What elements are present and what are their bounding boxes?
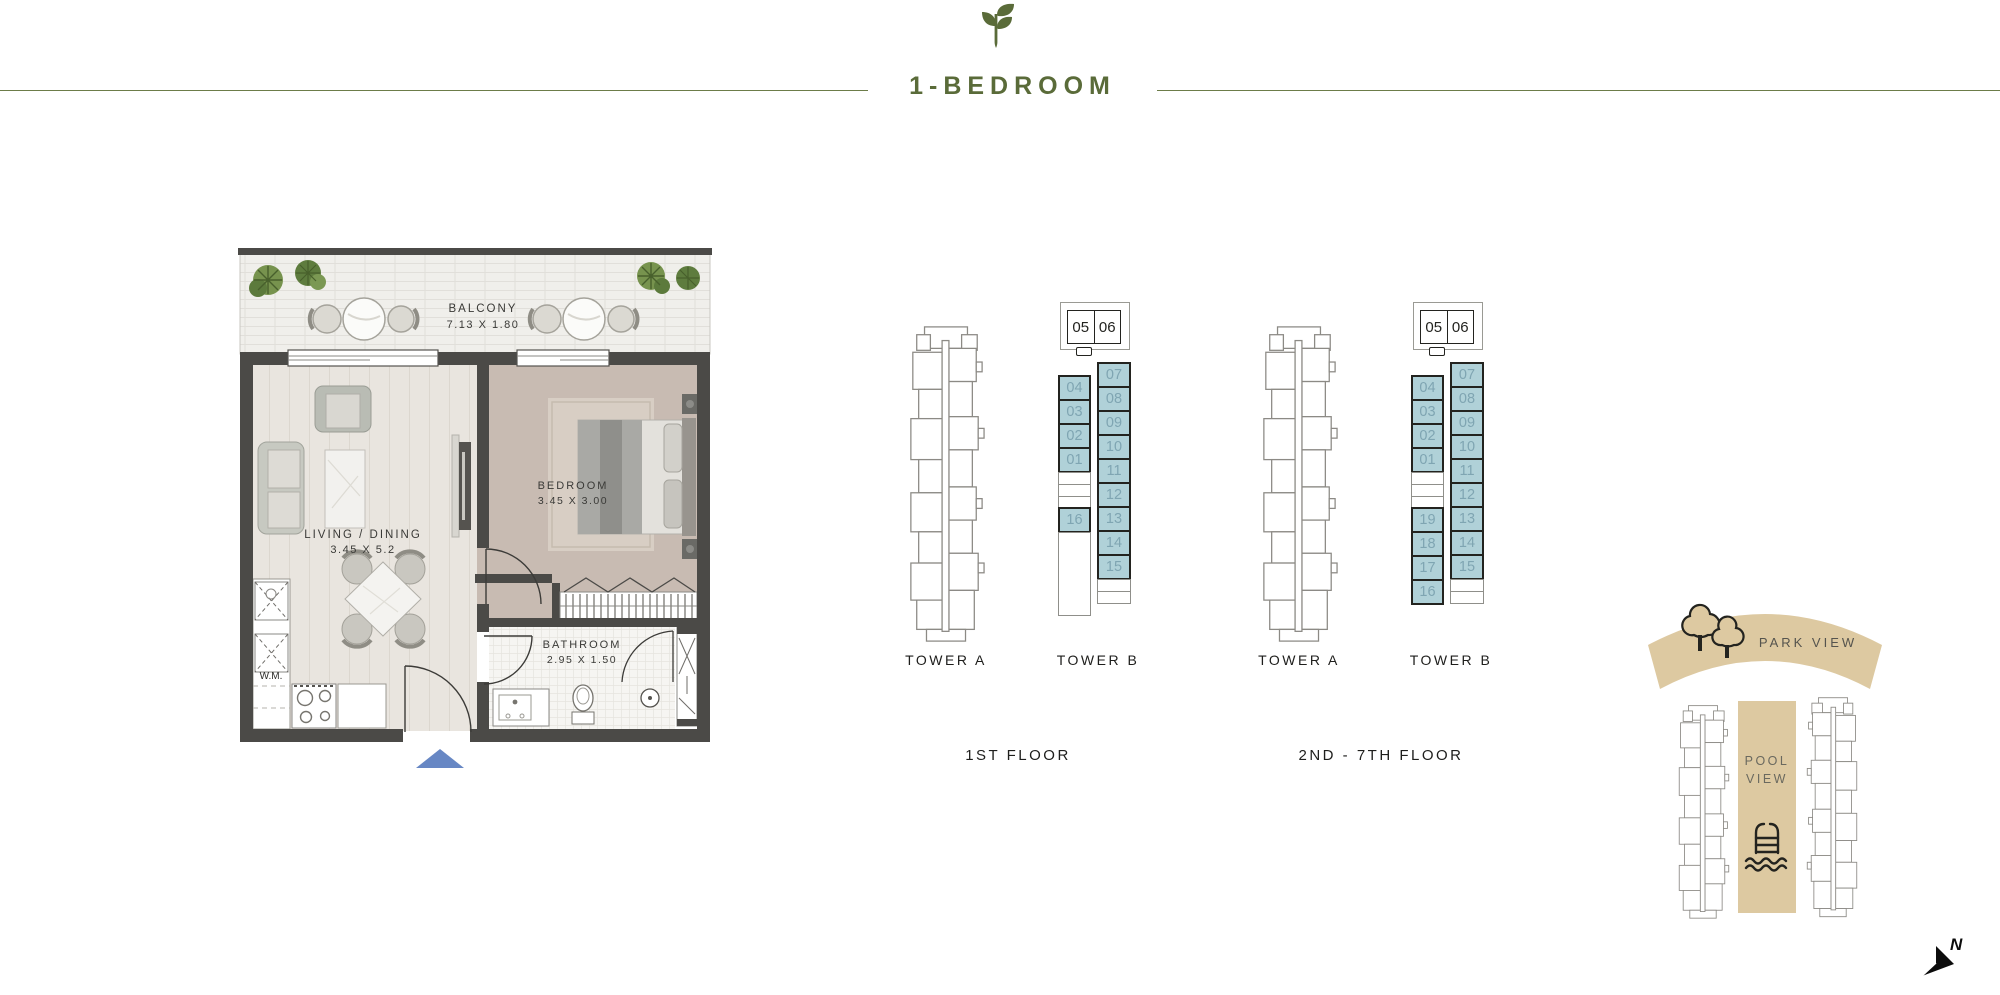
unit-18: 18 [1411,531,1444,557]
floor-label: 1ST FLOOR [888,747,1148,764]
unit-14: 14 [1450,530,1484,556]
unit-14: 14 [1097,530,1131,556]
tower-a-outline [896,323,996,645]
unit-10: 10 [1097,434,1131,460]
site-tower-a-outline [1679,706,1729,919]
lift-icon [1076,347,1092,356]
unit-03: 03 [1411,399,1444,425]
stack-right-column: 070809101112131415 [1450,362,1484,604]
park-view-label: PARK VIEW [1759,635,1857,650]
unit-15: 15 [1097,554,1131,580]
tower-b-label: TOWER B [1028,652,1168,668]
unit-05: 05 [1421,311,1448,343]
tower-b-stack: 05 06 0403020119181716 07080910111213141… [1405,300,1540,650]
unit-10: 10 [1450,434,1484,460]
balcony-label: BALCONY [449,303,518,315]
unused-unit [1097,591,1131,604]
unit-11: 11 [1450,458,1484,484]
tower-a-label: TOWER A [876,652,1016,668]
site-plan: PARK VIEW POOL VIEW N [1630,583,1980,995]
pool-view-band [1738,701,1796,913]
stack-left-column: 0403020119181716 [1411,375,1444,605]
entry-marker-icon [416,749,464,768]
stack-left-column: 0403020116 [1058,375,1091,616]
unit-19: 19 [1411,507,1444,533]
stack-header: 05 06 [1420,310,1474,344]
balcony-dims: 7.13 X 1.80 [447,319,520,331]
diagram-1st-floor: 05 06 0403020116 070809101112131415 TOWE… [880,295,1200,775]
living-window [288,350,438,366]
unit-07: 07 [1450,362,1484,388]
unit-02: 02 [1411,423,1444,449]
title-rule-right [1157,90,2000,91]
unit-13: 13 [1097,506,1131,532]
pool-view-label-2: VIEW [1746,772,1788,786]
tower-b-stack: 05 06 0403020116 070809101112131415 [1052,300,1187,650]
page: 1-BEDROOM [0,0,2000,995]
bedroom-label: BEDROOM [538,480,609,492]
unit-13: 13 [1450,506,1484,532]
coffee-table [325,450,365,528]
unit-01: 01 [1411,447,1444,473]
bedroom-window [517,350,609,366]
brand-leaf-icon [970,2,1022,48]
diagram-2nd-7th-floor: 05 06 0403020119181716 07080910111213141… [1233,295,1553,775]
pool-view-label-1: POOL [1745,754,1790,768]
title-rule-left [0,90,868,91]
unit-08: 08 [1450,386,1484,412]
unit-09: 09 [1450,410,1484,436]
unit-17: 17 [1411,555,1444,581]
unit-07: 07 [1097,362,1131,388]
unit-16: 16 [1058,507,1091,533]
north-label: N [1950,935,1963,954]
sofa [258,442,304,534]
closet [677,627,697,726]
unit-12: 12 [1097,482,1131,508]
site-tower-b-outline [1807,698,1857,917]
unit-06: 06 [1095,311,1121,343]
tower-b-label: TOWER B [1381,652,1521,668]
bathroom-dims: 2.95 X 1.50 [547,654,617,666]
unit-09: 09 [1097,410,1131,436]
unit-12: 12 [1450,482,1484,508]
stack-right-column: 070809101112131415 [1097,362,1131,604]
park-view-band: PARK VIEW [1648,605,1882,689]
dining-set [342,551,425,646]
unused-unit [1058,532,1091,616]
armchair [315,386,371,432]
north-arrow-icon: N [1922,935,1963,976]
tower-a-label: TOWER A [1229,652,1369,668]
unit-04: 04 [1411,375,1444,401]
unused-unit [1450,591,1484,604]
floor-label: 2ND - 7TH FLOOR [1251,747,1511,764]
unit-05: 05 [1068,311,1095,343]
unit-11: 11 [1097,458,1131,484]
unit-15: 15 [1450,554,1484,580]
floorplan: BALCONY 7.13 X 1.80 BEDROOM 3.45 X 3.00 [230,246,720,776]
stack-header: 05 06 [1067,310,1121,344]
wm-label: W.M. [260,671,283,682]
living-label: LIVING / DINING [304,529,422,541]
unit-08: 08 [1097,386,1131,412]
bedroom-dims: 3.45 X 3.00 [538,495,608,507]
page-title: 1-BEDROOM [870,72,1155,101]
lift-icon [1429,347,1445,356]
unit-02: 02 [1058,423,1091,449]
unit-01: 01 [1058,447,1091,473]
unit-03: 03 [1058,399,1091,425]
bathroom-label: BATHROOM [543,639,622,651]
tower-a-outline [1249,323,1349,645]
tv-unit [452,435,471,537]
balcony: BALCONY 7.13 X 1.80 [238,248,712,354]
unit-16: 16 [1411,579,1444,605]
unit-06: 06 [1448,311,1474,343]
living-dims: 3.45 X 5.2 [330,544,395,556]
unit-04: 04 [1058,375,1091,401]
